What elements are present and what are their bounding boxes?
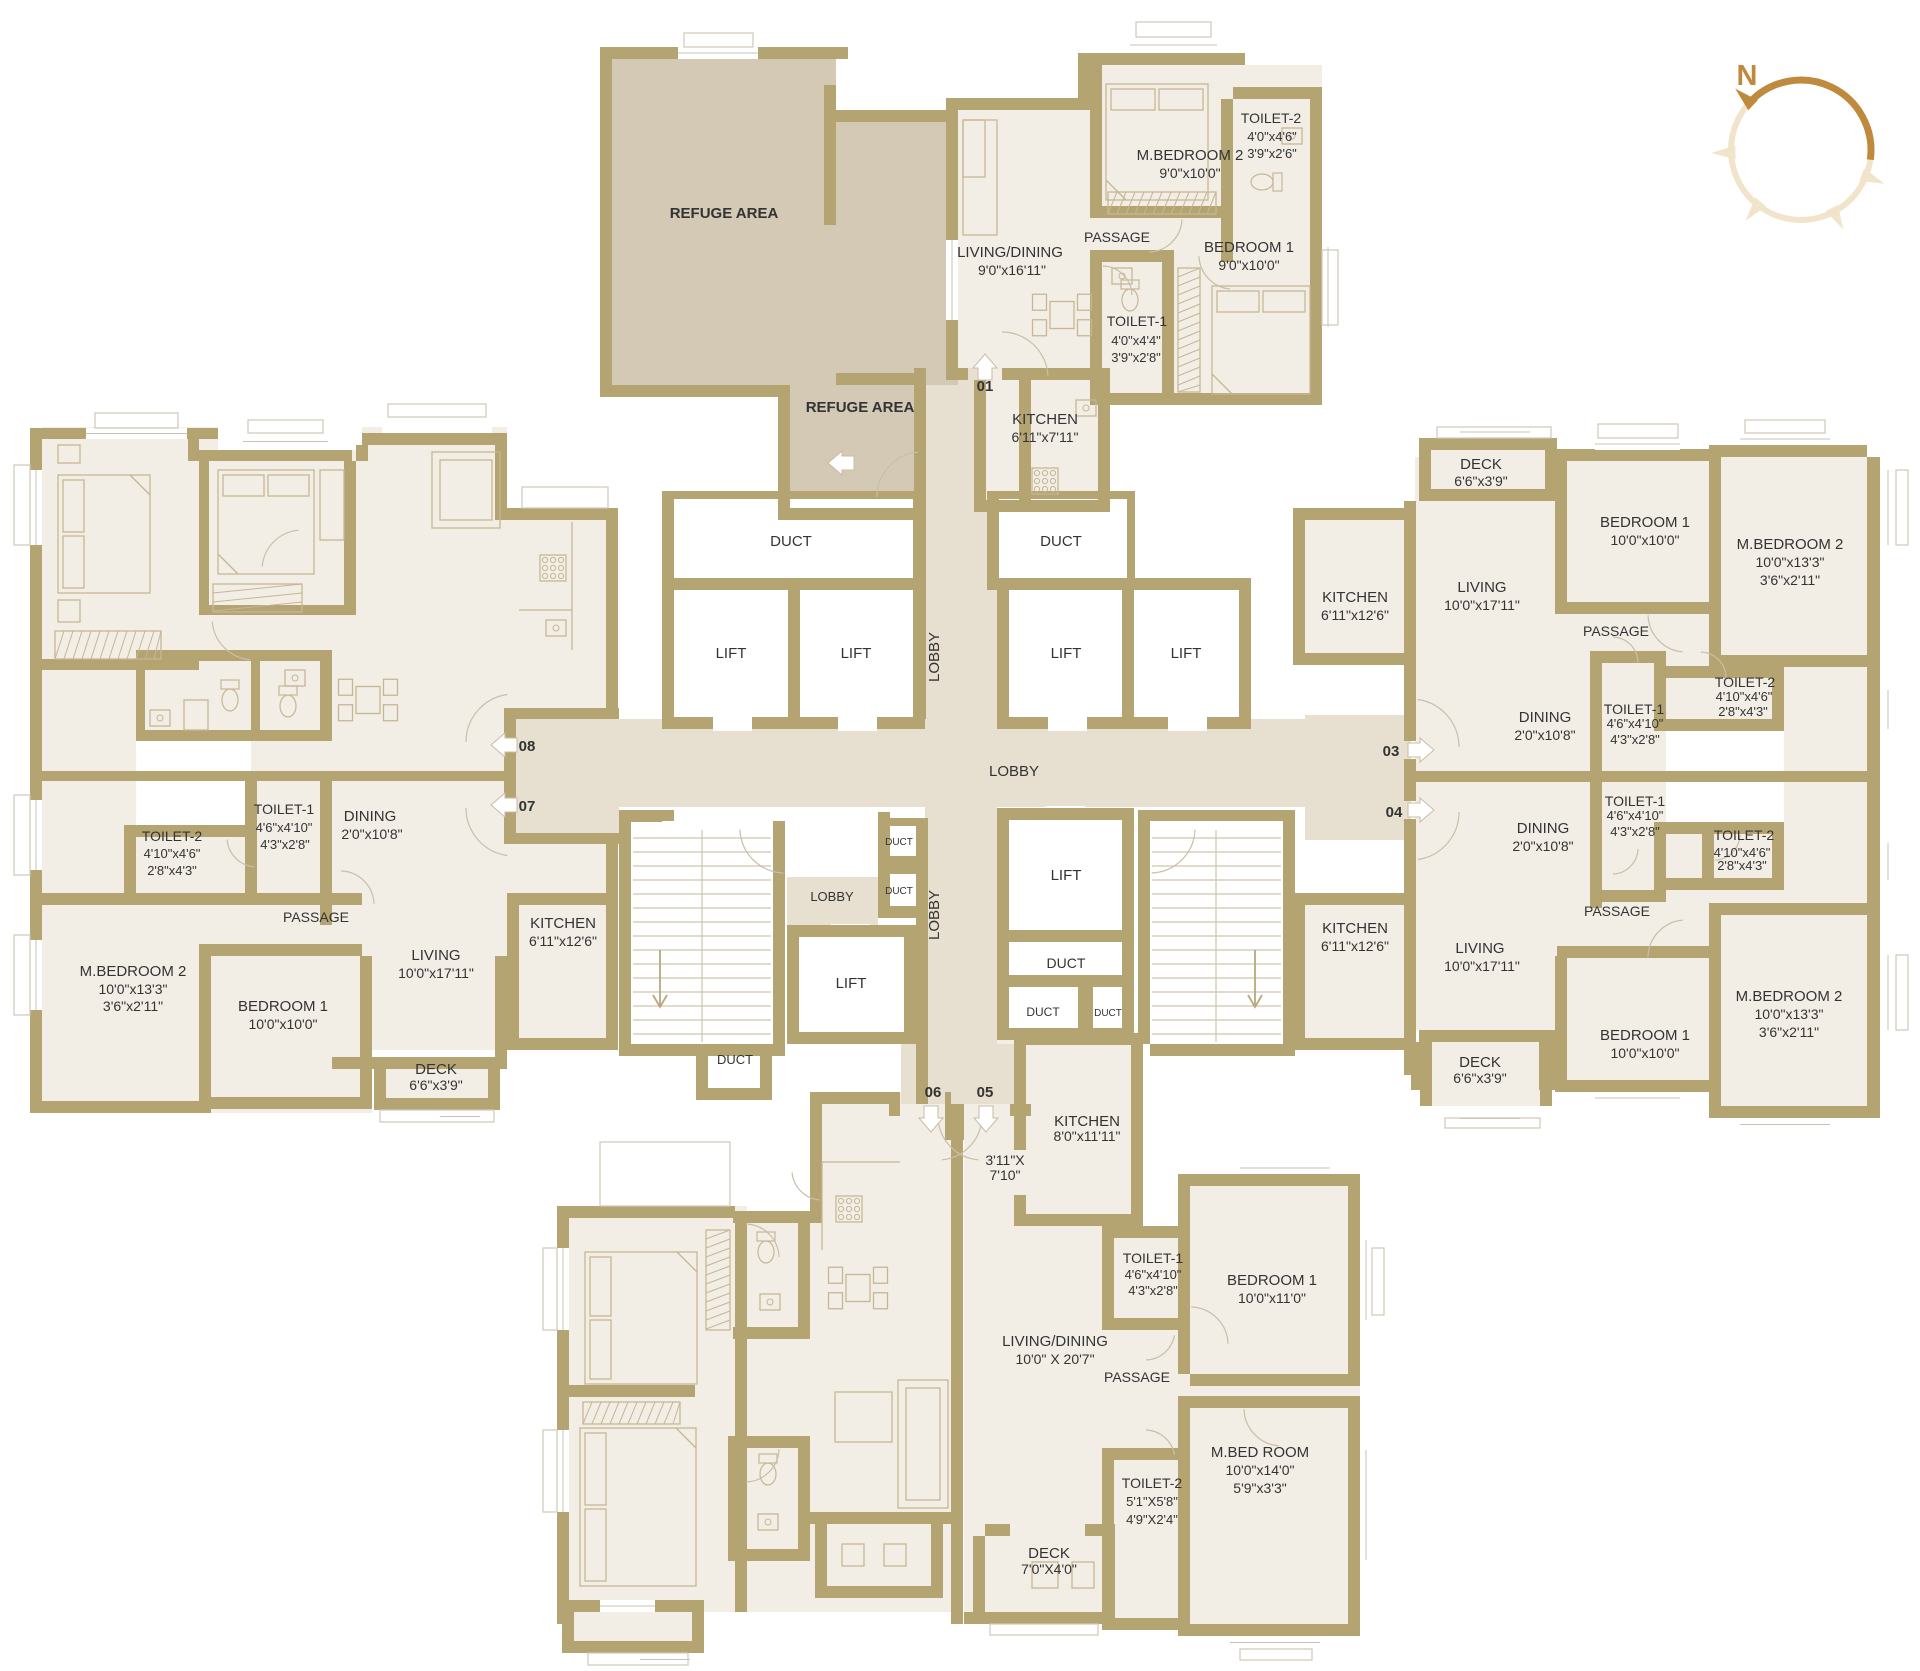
svg-text:PASSAGE: PASSAGE — [1084, 229, 1150, 245]
svg-text:10'0"x17'11": 10'0"x17'11" — [1444, 597, 1520, 613]
svg-text:BEDROOM 1: BEDROOM 1 — [1600, 1027, 1690, 1044]
svg-text:4'6"x4'10": 4'6"x4'10" — [1125, 1267, 1182, 1282]
svg-text:2'8"x4'3": 2'8"x4'3" — [1717, 858, 1767, 873]
svg-text:4'6"x4'10": 4'6"x4'10" — [1607, 808, 1664, 823]
svg-text:2'8"x4'3": 2'8"x4'3" — [1718, 704, 1768, 719]
svg-text:KITCHEN: KITCHEN — [1322, 589, 1388, 606]
svg-text:4'10"x4'6": 4'10"x4'6" — [144, 846, 201, 861]
svg-text:DUCT: DUCT — [1047, 955, 1086, 971]
svg-text:DUCT: DUCT — [1094, 1008, 1122, 1019]
svg-text:10'0"x11'0": 10'0"x11'0" — [1238, 1290, 1306, 1306]
svg-text:2'0"x10'8": 2'0"x10'8" — [341, 826, 402, 842]
svg-text:6'11"x12'6": 6'11"x12'6" — [1321, 938, 1389, 954]
svg-text:04: 04 — [1386, 804, 1403, 821]
svg-text:DUCT: DUCT — [1040, 533, 1082, 550]
svg-text:03: 03 — [1383, 743, 1400, 760]
svg-text:PASSAGE: PASSAGE — [1584, 903, 1650, 919]
svg-text:M.BEDROOM 2: M.BEDROOM 2 — [1736, 988, 1843, 1005]
svg-text:4'3"x2'8": 4'3"x2'8" — [1610, 824, 1660, 839]
svg-text:10'0" X 20'7": 10'0" X 20'7" — [1015, 1351, 1094, 1367]
svg-text:LIVING/DINING: LIVING/DINING — [1002, 1333, 1108, 1350]
svg-text:3'6"x2'11": 3'6"x2'11" — [103, 998, 163, 1014]
svg-text:M.BEDROOM 2: M.BEDROOM 2 — [80, 963, 187, 980]
svg-text:LIFT: LIFT — [1051, 645, 1082, 662]
svg-text:BEDROOM 1: BEDROOM 1 — [1227, 1272, 1317, 1289]
svg-text:10'0"x10'0": 10'0"x10'0" — [1610, 532, 1679, 548]
svg-text:9'0"x10'0": 9'0"x10'0" — [1218, 257, 1279, 273]
svg-text:10'0"x13'3": 10'0"x13'3" — [1755, 554, 1824, 570]
svg-text:KITCHEN: KITCHEN — [530, 915, 596, 932]
svg-text:3'9"x2'6": 3'9"x2'6" — [1247, 146, 1297, 161]
svg-text:4'9"X2'4": 4'9"X2'4" — [1126, 1512, 1178, 1527]
svg-text:9'0"x16'11": 9'0"x16'11" — [978, 262, 1046, 278]
svg-text:6'6"x3'9": 6'6"x3'9" — [1454, 473, 1507, 489]
svg-text:REFUGE AREA: REFUGE AREA — [806, 399, 915, 416]
svg-text:4'0"x4'6": 4'0"x4'6" — [1247, 129, 1297, 144]
svg-text:DINING: DINING — [1517, 820, 1570, 837]
svg-text:6'11"x7'11": 6'11"x7'11" — [1012, 429, 1079, 445]
svg-text:M.BEDROOM 2: M.BEDROOM 2 — [1137, 147, 1244, 164]
svg-text:DUCT: DUCT — [770, 533, 812, 550]
svg-text:DECK: DECK — [1028, 1545, 1070, 1562]
svg-text:TOILET-2: TOILET-2 — [1241, 110, 1302, 126]
svg-text:4'3"x2'8": 4'3"x2'8" — [260, 837, 310, 852]
svg-text:BEDROOM 1: BEDROOM 1 — [238, 998, 328, 1015]
svg-text:DECK: DECK — [415, 1061, 457, 1078]
svg-text:LIFT: LIFT — [836, 975, 867, 992]
svg-text:LIFT: LIFT — [1051, 867, 1082, 884]
svg-text:M.BEDROOM 2: M.BEDROOM 2 — [1737, 536, 1844, 553]
svg-text:06: 06 — [925, 1084, 942, 1101]
svg-text:5'1"X5'8": 5'1"X5'8" — [1126, 1494, 1178, 1509]
svg-text:M.BED ROOM: M.BED ROOM — [1211, 1444, 1309, 1461]
svg-text:LOBBY: LOBBY — [989, 763, 1039, 780]
svg-text:DINING: DINING — [344, 808, 397, 825]
svg-text:LOBBY: LOBBY — [810, 889, 854, 904]
svg-text:6'11"x12'6": 6'11"x12'6" — [529, 933, 597, 949]
svg-text:2'0"x10'8": 2'0"x10'8" — [1512, 838, 1573, 854]
svg-text:REFUGE AREA: REFUGE AREA — [670, 205, 779, 222]
svg-text:TOILET-1: TOILET-1 — [1123, 1250, 1184, 1266]
svg-text:2'0"x10'8": 2'0"x10'8" — [1514, 727, 1575, 743]
svg-text:2'8"x4'3": 2'8"x4'3" — [147, 863, 197, 878]
svg-text:01: 01 — [977, 378, 994, 395]
svg-text:7'0"X4'0": 7'0"X4'0" — [1021, 1561, 1077, 1577]
svg-text:TOILET-1: TOILET-1 — [1604, 701, 1665, 717]
svg-text:4'6"x4'10": 4'6"x4'10" — [256, 820, 313, 835]
svg-text:10'0"x13'3": 10'0"x13'3" — [98, 981, 167, 997]
svg-text:LIFT: LIFT — [1171, 645, 1202, 662]
svg-text:KITCHEN: KITCHEN — [1012, 411, 1078, 428]
svg-text:7'10": 7'10" — [989, 1167, 1020, 1183]
svg-text:3'11"X: 3'11"X — [985, 1152, 1025, 1168]
svg-text:TOILET-1: TOILET-1 — [254, 801, 315, 817]
svg-text:LIVING: LIVING — [411, 947, 460, 964]
svg-text:TOILET-2: TOILET-2 — [1714, 827, 1775, 843]
svg-text:4'0"x4'4": 4'0"x4'4" — [1111, 333, 1161, 348]
svg-text:6'11"x12'6": 6'11"x12'6" — [1321, 607, 1389, 623]
svg-text:08: 08 — [519, 738, 536, 755]
svg-text:10'0"x17'11": 10'0"x17'11" — [1444, 958, 1520, 974]
svg-text:10'0"x14'0": 10'0"x14'0" — [1225, 1462, 1294, 1478]
svg-text:10'0"x10'0": 10'0"x10'0" — [1610, 1045, 1679, 1061]
svg-text:LIVING: LIVING — [1457, 579, 1506, 596]
svg-text:TOILET-2: TOILET-2 — [1715, 674, 1776, 690]
svg-text:PASSAGE: PASSAGE — [1104, 1369, 1170, 1385]
svg-text:DECK: DECK — [1459, 1054, 1501, 1071]
svg-text:3'9"x2'8": 3'9"x2'8" — [1111, 350, 1161, 365]
svg-text:LIFT: LIFT — [841, 645, 872, 662]
svg-text:LOBBY: LOBBY — [926, 890, 943, 940]
svg-text:4'3"x2'8": 4'3"x2'8" — [1128, 1283, 1178, 1298]
svg-text:TOILET-2: TOILET-2 — [1122, 1475, 1183, 1491]
svg-text:05: 05 — [977, 1084, 994, 1101]
svg-text:10'0"x17'11": 10'0"x17'11" — [398, 965, 474, 981]
svg-text:8'0"x11'11": 8'0"x11'11" — [1054, 1128, 1121, 1144]
svg-text:07: 07 — [519, 798, 536, 815]
svg-text:LIVING: LIVING — [1455, 940, 1504, 957]
svg-text:10'0"x10'0": 10'0"x10'0" — [248, 1016, 317, 1032]
svg-text:KITCHEN: KITCHEN — [1322, 920, 1388, 937]
svg-text:DINING: DINING — [1519, 709, 1572, 726]
svg-text:TOILET-1: TOILET-1 — [1605, 793, 1666, 809]
svg-text:LIFT: LIFT — [716, 645, 747, 662]
svg-text:PASSAGE: PASSAGE — [283, 909, 349, 925]
svg-text:DUCT: DUCT — [885, 886, 913, 897]
svg-text:3'6"x2'11": 3'6"x2'11" — [1760, 572, 1820, 588]
svg-text:LIVING/DINING: LIVING/DINING — [957, 244, 1063, 261]
svg-text:9'0"x10'0": 9'0"x10'0" — [1159, 165, 1220, 181]
svg-text:DECK: DECK — [1460, 456, 1502, 473]
svg-text:BEDROOM 1: BEDROOM 1 — [1600, 514, 1690, 531]
svg-text:DUCT: DUCT — [1026, 1005, 1060, 1019]
svg-text:10'0"x13'3": 10'0"x13'3" — [1754, 1006, 1823, 1022]
svg-text:4'10"x4'6": 4'10"x4'6" — [1716, 689, 1773, 704]
svg-text:DUCT: DUCT — [885, 837, 913, 848]
svg-text:LOBBY: LOBBY — [926, 632, 943, 682]
svg-text:6'6"x3'9": 6'6"x3'9" — [409, 1077, 462, 1093]
svg-text:TOILET-2: TOILET-2 — [142, 828, 203, 844]
svg-text:5'9"x3'3": 5'9"x3'3" — [1233, 1480, 1286, 1496]
svg-text:4'6"x4'10": 4'6"x4'10" — [1607, 716, 1664, 731]
svg-text:N: N — [1737, 60, 1758, 92]
svg-text:DUCT: DUCT — [717, 1052, 753, 1067]
svg-text:4'3"x2'8": 4'3"x2'8" — [1610, 732, 1660, 747]
svg-text:PASSAGE: PASSAGE — [1583, 623, 1649, 639]
svg-text:TOILET-1: TOILET-1 — [1107, 313, 1168, 329]
svg-text:3'6"x2'11": 3'6"x2'11" — [1759, 1024, 1819, 1040]
svg-text:6'6"x3'9": 6'6"x3'9" — [1453, 1070, 1506, 1086]
svg-text:BEDROOM 1: BEDROOM 1 — [1204, 239, 1294, 256]
